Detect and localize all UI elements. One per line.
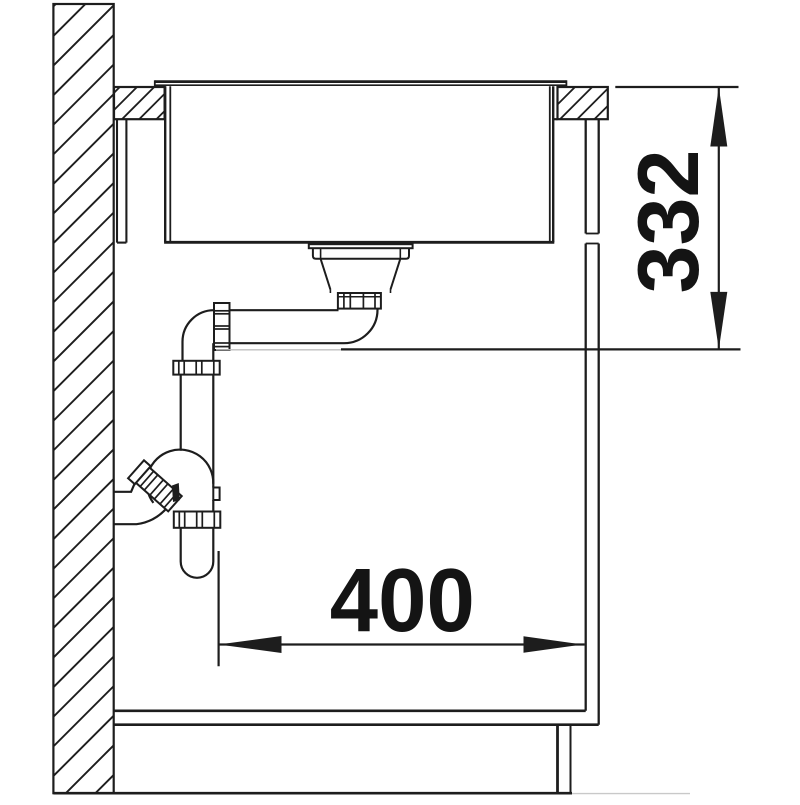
svg-text:400: 400 [330, 551, 475, 651]
svg-text:332: 332 [621, 150, 717, 294]
